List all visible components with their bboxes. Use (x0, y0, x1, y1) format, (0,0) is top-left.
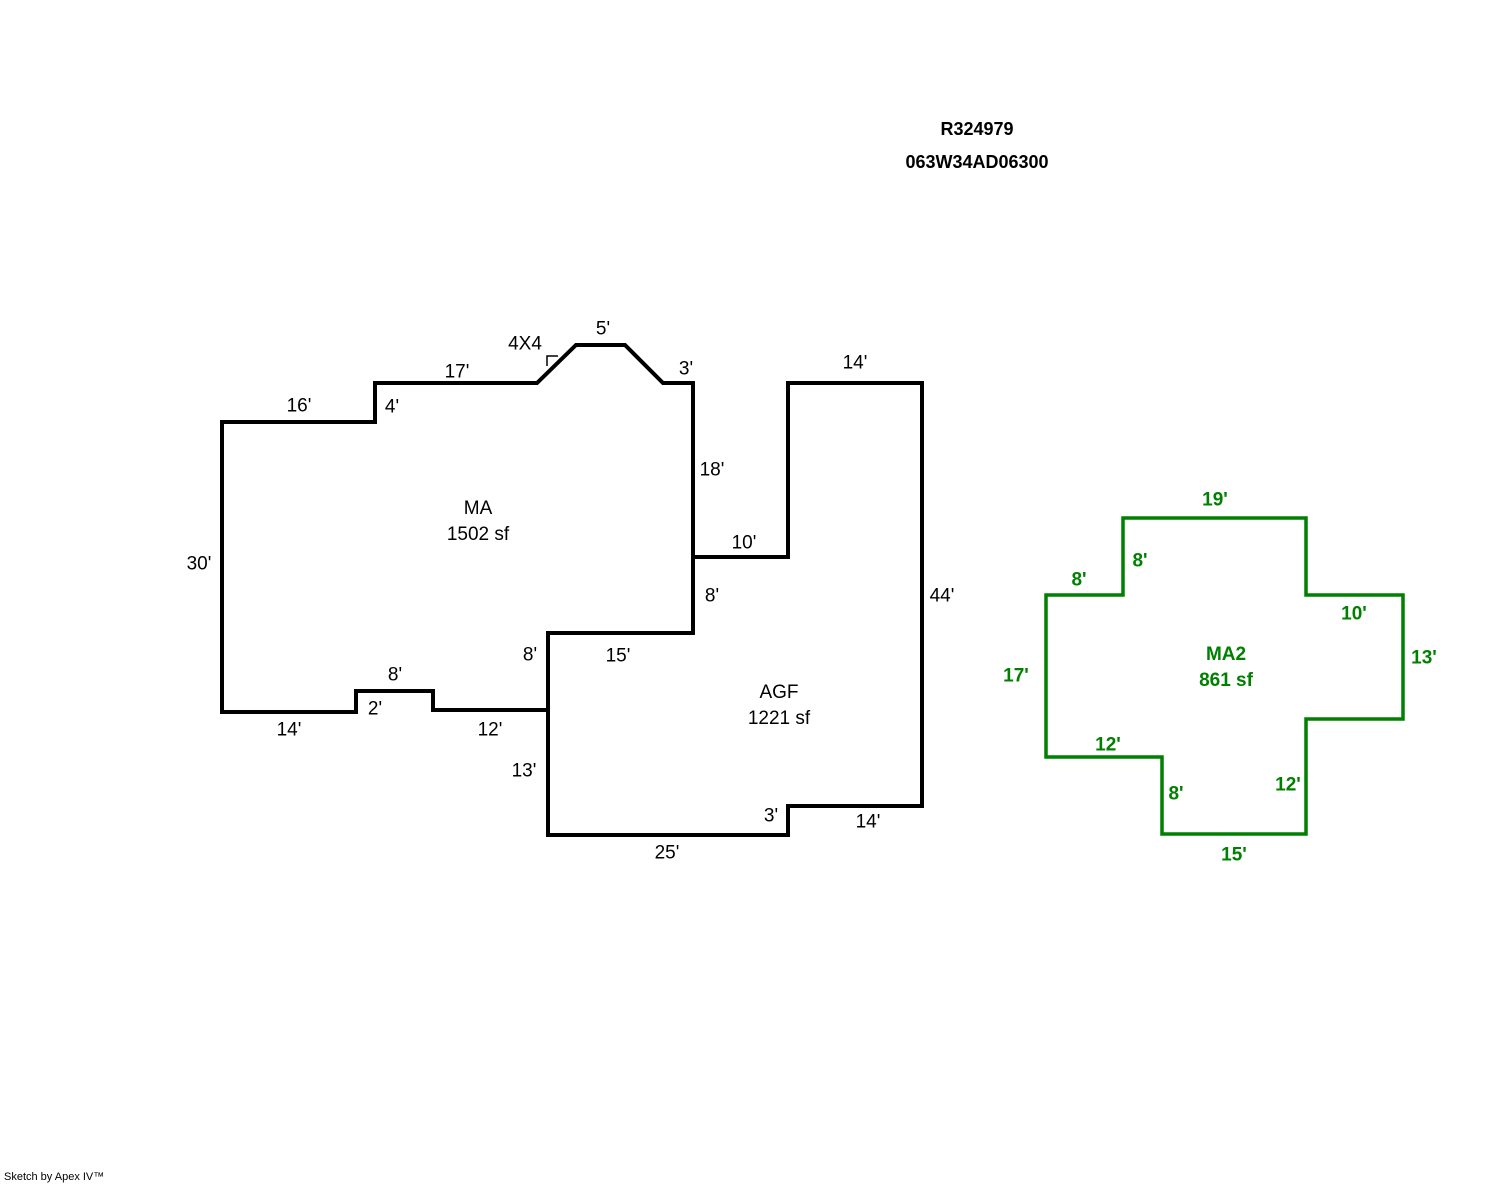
dim-label-black-7: 18' (700, 461, 725, 480)
dim-label-black-16: 8' (523, 646, 537, 665)
dim-label-black-10: 44' (930, 587, 955, 606)
dim-label-green-3: 10' (1341, 605, 1367, 624)
dim-label-black-14: 14' (277, 721, 302, 740)
dim-label-green-9: 15' (1221, 846, 1247, 865)
floorplan-drawing (0, 0, 1488, 1190)
dim-label-green-5: 17' (1003, 667, 1029, 686)
dim-label-black-19: 3' (764, 807, 778, 826)
ma-area-name: MA (447, 496, 509, 522)
ma-area-label: MA 1502 sf (447, 496, 509, 548)
dim-label-black-8: 10' (732, 534, 757, 553)
dim-label-black-13: 2' (368, 700, 382, 719)
agf-area-label: AGF 1221 sf (748, 680, 810, 732)
sketch-page: R324979 063W34AD06300 16'4'17'4X45'3'14'… (0, 0, 1488, 1190)
dim-label-green-0: 19' (1202, 491, 1228, 510)
agf-area-name: AGF (748, 680, 810, 706)
dim-label-black-12: 8' (388, 666, 402, 685)
dim-label-black-5: 3' (679, 360, 693, 379)
account-id: 063W34AD06300 (905, 146, 1048, 179)
dim-label-black-1: 4' (385, 398, 399, 417)
dim-label-black-17: 15' (606, 647, 631, 666)
dim-label-black-6: 14' (843, 354, 868, 373)
dim-label-black-3: 4X4 (508, 335, 542, 354)
apex-credit: Sketch by Apex IV™ (4, 1171, 104, 1183)
parcel-id: R324979 (905, 113, 1048, 146)
agf-area-size: 1221 sf (748, 706, 810, 732)
dim-label-black-9: 8' (705, 587, 719, 606)
dim-label-black-2: 17' (445, 363, 470, 382)
dim-label-green-4: 13' (1411, 649, 1437, 668)
dim-label-black-0: 16' (287, 397, 312, 416)
dim-label-black-20: 14' (856, 813, 881, 832)
dim-label-black-21: 25' (655, 844, 680, 863)
sketch-header: R324979 063W34AD06300 (905, 113, 1048, 179)
dim-label-black-11: 30' (187, 555, 212, 574)
ma2-area-size: 861 sf (1199, 668, 1253, 694)
dim-label-black-4: 5' (596, 320, 610, 339)
ma2-area-label: MA2 861 sf (1199, 642, 1253, 694)
dim-label-green-7: 8' (1168, 785, 1183, 804)
ma2-area-name: MA2 (1199, 642, 1253, 668)
dim-label-black-18: 13' (512, 762, 537, 781)
ma-area-size: 1502 sf (447, 522, 509, 548)
dim-label-green-8: 12' (1275, 776, 1301, 795)
dim-label-green-2: 8' (1071, 571, 1086, 590)
dim-label-green-1: 8' (1132, 552, 1147, 571)
agf-outline (548, 383, 922, 835)
dim-label-green-6: 12' (1095, 736, 1121, 755)
dim-label-black-15: 12' (478, 721, 503, 740)
